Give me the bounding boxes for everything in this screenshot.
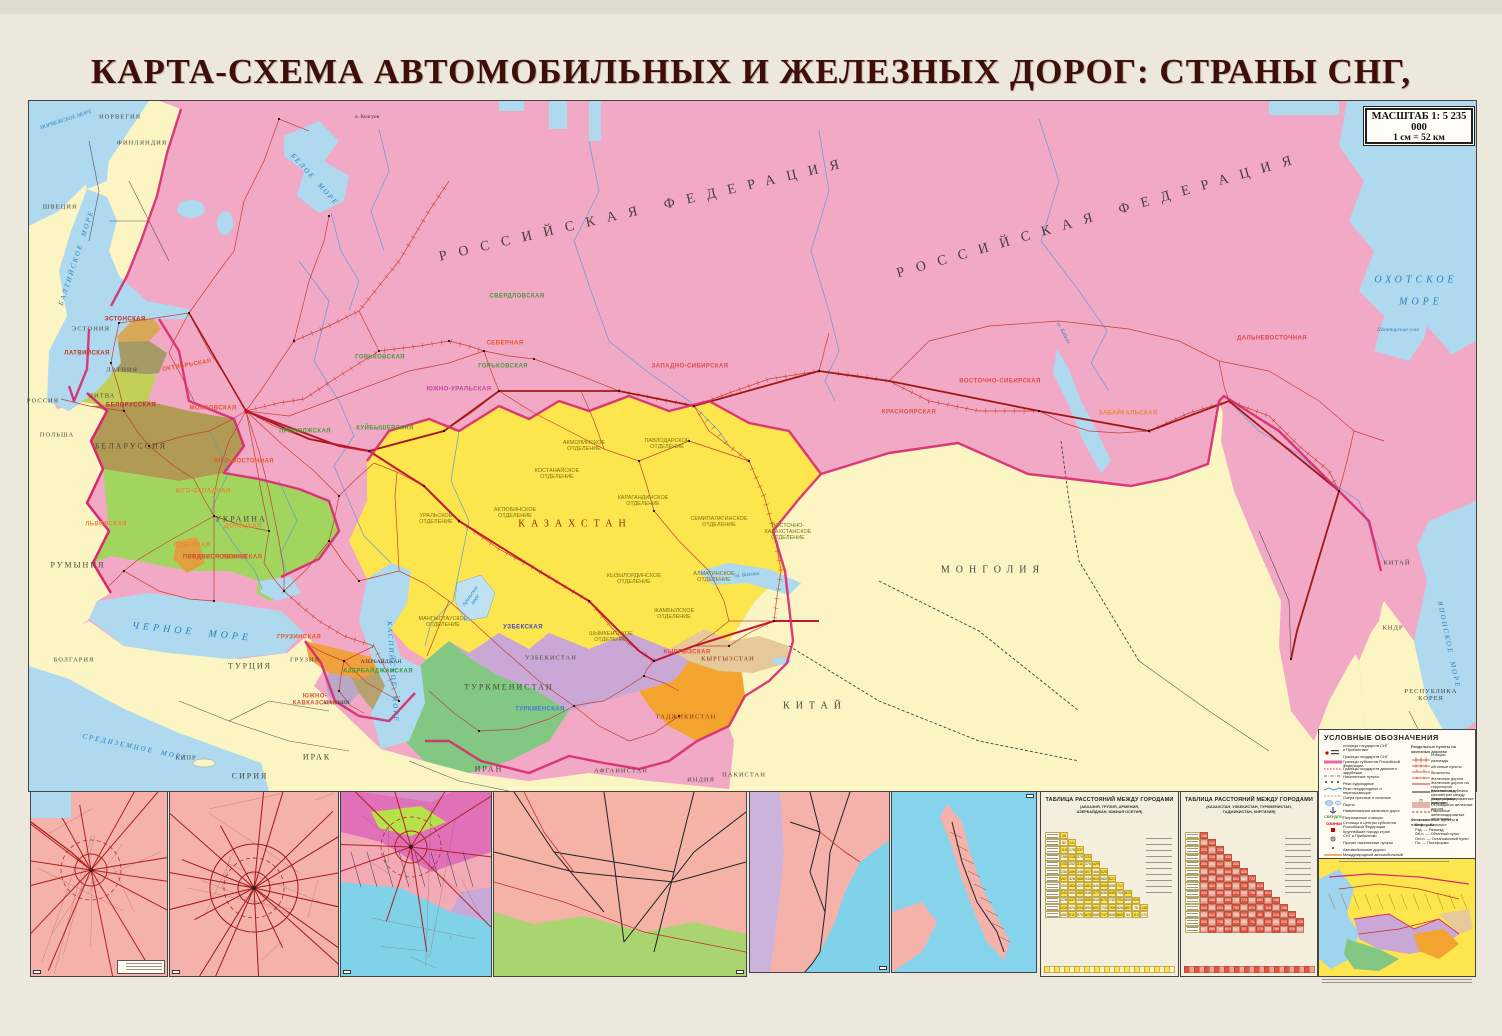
- table-row-label: [1045, 890, 1060, 897]
- table-cell: 715: [1232, 897, 1240, 904]
- table-row-label: [1185, 904, 1200, 911]
- table-cell: 449: [1216, 868, 1224, 875]
- table-cell: 133: [1256, 918, 1264, 925]
- table-cell: 722: [1248, 875, 1256, 882]
- table-cell: 82: [1060, 839, 1068, 846]
- table-row-label: [1045, 904, 1060, 911]
- table-cell: 575: [1208, 904, 1216, 911]
- table-row-label: [1185, 861, 1200, 868]
- table-cell: 311: [1076, 861, 1084, 868]
- table-cell: 614: [1092, 897, 1100, 904]
- table-cell: 597: [1216, 897, 1224, 904]
- inset-vladivostok[interactable]: [749, 791, 890, 973]
- table-row-label: [1045, 911, 1060, 918]
- table-cell: 347: [1280, 926, 1288, 933]
- table-cell: 634: [1216, 904, 1224, 911]
- table-cell: 331: [1200, 868, 1208, 875]
- table-cell: 767: [1224, 918, 1232, 925]
- table-cell: 304: [1060, 882, 1068, 889]
- table-cell: 429: [1092, 861, 1100, 868]
- table-row-label: [1185, 911, 1200, 918]
- table-cell: 257: [1200, 854, 1208, 861]
- table-cell: 406: [1288, 926, 1296, 933]
- table-cell: 96: [1256, 911, 1264, 918]
- table-cell: 562: [1100, 875, 1108, 882]
- table-row-label: [1045, 875, 1060, 882]
- table-cell: 437: [1068, 897, 1076, 904]
- table-cell: 464: [1208, 882, 1216, 889]
- map-canvas: ★: [29, 101, 1476, 791]
- table-cell: 806: [1108, 911, 1116, 918]
- table-cell: 516: [1200, 904, 1208, 911]
- legend-item: Крупнейшие города стран СНГ и Прибалтики: [1323, 830, 1407, 838]
- table-cell: 279: [1208, 846, 1216, 853]
- table-title: ТАБЛИЦА РАССТОЯНИЙ МЕЖДУ ГОРОДАМИ: [1181, 797, 1317, 803]
- inset-saint-petersburg[interactable]: [30, 791, 168, 977]
- table-row-label: [1185, 868, 1200, 875]
- table-row-label: [1045, 861, 1060, 868]
- table-cell: 333: [1084, 854, 1092, 861]
- table-cell: 170: [1256, 926, 1264, 933]
- table-cell: 791: [1116, 897, 1124, 904]
- table-row-label: [1045, 846, 1060, 853]
- table-subtitle: (КАЗАХСТАН, УЗБЕКИСТАН, ТУРКМЕНИСТАН, ТА…: [1181, 805, 1317, 814]
- table-cell: 434: [1224, 854, 1232, 861]
- table-cell: 45: [1060, 832, 1068, 839]
- table-cell: 525: [1100, 868, 1108, 875]
- inset-ekaterinburg-chelyabinsk[interactable]: [493, 791, 747, 977]
- table-cell: 481: [1084, 882, 1092, 889]
- table-row-label: [1045, 839, 1060, 846]
- table-cell: 508: [1224, 868, 1232, 875]
- table-cell: 288: [1272, 926, 1280, 933]
- table-row-label: [1045, 854, 1060, 861]
- table-cell: 538: [1208, 897, 1216, 904]
- table-cell: 855: [1256, 890, 1264, 897]
- legend: УСЛОВНЫЕ ОБОЗНАЧЕНИЯ столицы государств …: [1318, 729, 1476, 859]
- table-cell: 629: [1084, 911, 1092, 918]
- table-cell: 678: [1232, 890, 1240, 897]
- table-cell: 172: [1140, 911, 1148, 918]
- table-cell: 577: [1092, 890, 1100, 897]
- table-cell: 592: [1084, 904, 1092, 911]
- table-cell: 81: [1264, 897, 1272, 904]
- inset-label: [172, 970, 180, 974]
- table-cell: 553: [1200, 911, 1208, 918]
- table-cell: 686: [1208, 926, 1216, 933]
- table-row-label: [1185, 875, 1200, 882]
- table-cell: 338: [1216, 846, 1224, 853]
- table-row-label: [1045, 832, 1060, 839]
- inset-krasnodar-volgograd[interactable]: [340, 791, 492, 977]
- table-cell: 804: [1224, 926, 1232, 933]
- inset-label: [879, 966, 887, 970]
- table-cell: 341: [1060, 890, 1068, 897]
- table-cell: 560: [1216, 890, 1224, 897]
- table-cell: 663: [1240, 875, 1248, 882]
- table-row-label: [1185, 839, 1200, 846]
- table-cell: 452: [1060, 911, 1068, 918]
- table-cell: 710: [1100, 904, 1108, 911]
- table-cell: 641: [1232, 882, 1240, 889]
- table-cell: 326: [1068, 875, 1076, 882]
- table-cell: 237: [1076, 846, 1084, 853]
- table-cell: 717: [1116, 882, 1124, 889]
- table-cell: 796: [1248, 890, 1256, 897]
- legend-stop-item: Пл. — Платформа: [1415, 841, 1449, 845]
- table-cell: 511: [1068, 911, 1076, 918]
- table-cell: 251: [1272, 918, 1280, 925]
- table-row-label: [1185, 926, 1200, 933]
- table-cell: 415: [1060, 904, 1068, 911]
- table-cell: 540: [1092, 882, 1100, 889]
- table-cell: 730: [1224, 911, 1232, 918]
- table-cell: 363: [1068, 882, 1076, 889]
- table-cell: 545: [1224, 875, 1232, 882]
- table-cell: 671: [1216, 911, 1224, 918]
- table-cell: 273: [1280, 911, 1288, 918]
- table-row-label: [1045, 897, 1060, 904]
- table-cell: 119: [1060, 846, 1068, 853]
- table-cell: 428: [1296, 918, 1304, 925]
- table-cell: 649: [1208, 918, 1216, 925]
- table-cell: 274: [1076, 854, 1084, 861]
- table-cell: 909: [1132, 897, 1140, 904]
- table-cell: 833: [1248, 897, 1256, 904]
- table-cell: 826: [1232, 918, 1240, 925]
- table-cell: 183: [1200, 839, 1208, 846]
- table-cell: 156: [1060, 854, 1068, 861]
- table-cell: 496: [1076, 897, 1084, 904]
- scale-box: МАСШТАБ 1: 5 235 000 1 см = 52 км: [1363, 106, 1475, 146]
- table-cell: 192: [1264, 918, 1272, 925]
- table-cell: 555: [1084, 897, 1092, 904]
- table-subtitle: (АБХАЗИЯ, ГРУЗИЯ, АРМЕНИЯ, АЗЕРБАЙДЖАН, …: [1041, 805, 1178, 814]
- table-cell: 673: [1100, 897, 1108, 904]
- table-row-label: [1045, 868, 1060, 875]
- table-cell: 375: [1216, 854, 1224, 861]
- table-row-label: [1185, 832, 1200, 839]
- table-cell: 242: [1208, 839, 1216, 846]
- table-cell: 636: [1100, 890, 1108, 897]
- table-row-label: [1045, 882, 1060, 889]
- table-cell: 870: [1248, 904, 1256, 911]
- table-cell: 619: [1224, 890, 1232, 897]
- table-cell: 353: [1208, 861, 1216, 868]
- table-cell: 252: [1068, 861, 1076, 868]
- table-cell: 604: [1232, 875, 1240, 882]
- table-cell: 818: [1256, 882, 1264, 889]
- inset-sakhalin[interactable]: [891, 791, 1037, 973]
- scale-line1: МАСШТАБ 1: 5 235 000: [1367, 111, 1471, 133]
- table-cell: 267: [1060, 875, 1068, 882]
- table-cell: 135: [1140, 904, 1148, 911]
- imprint-caption: [1322, 979, 1472, 984]
- table-cell: 914: [1264, 890, 1272, 897]
- table-cell: 370: [1084, 861, 1092, 868]
- scale-line2: 1 см = 52 км: [1367, 133, 1471, 143]
- table-cell: 700: [1240, 882, 1248, 889]
- table-cell: 368: [1200, 875, 1208, 882]
- table-cell: 863: [1232, 926, 1240, 933]
- table-cell: 442: [1200, 890, 1208, 897]
- table-cell: 289: [1068, 868, 1076, 875]
- table-cell: 236: [1280, 904, 1288, 911]
- table-cell: 215: [1068, 854, 1076, 861]
- table-cell: 385: [1076, 875, 1084, 882]
- table-cell: 474: [1068, 904, 1076, 911]
- main-map[interactable]: ★: [28, 100, 1477, 792]
- table-cell: 54: [1124, 911, 1132, 918]
- table-row-label: [1185, 854, 1200, 861]
- table-cell: 651: [1092, 904, 1100, 911]
- legend-item: Столицы и центры субъектов Российской Фе…: [1323, 821, 1407, 829]
- table-cell: 695: [1108, 890, 1116, 897]
- table-cell: 848: [1240, 911, 1248, 918]
- inset-label: [736, 970, 744, 974]
- table-cell: 369: [1288, 918, 1296, 925]
- table-cell: 582: [1224, 882, 1232, 889]
- table-cell: 332: [1288, 911, 1296, 918]
- table-cell: 590: [1200, 918, 1208, 925]
- table-cell: 789: [1232, 911, 1240, 918]
- table-cell: 177: [1272, 904, 1280, 911]
- table-title: ТАБЛИЦА РАССТОЯНИЙ МЕЖДУ ГОРОДАМИ: [1041, 797, 1178, 803]
- table-cell: 141: [1068, 839, 1076, 846]
- table-cell: 378: [1060, 897, 1068, 904]
- table-cell: 708: [1216, 918, 1224, 925]
- table-cell: 444: [1084, 875, 1092, 882]
- table-cell: 178: [1068, 846, 1076, 853]
- table-cell: 229: [1264, 926, 1272, 933]
- table-cell: 745: [1216, 926, 1224, 933]
- table-cell: 533: [1076, 904, 1084, 911]
- table-cell: 113: [1132, 911, 1140, 918]
- table-cell: 732: [1108, 897, 1116, 904]
- table-cell: 754: [1116, 890, 1124, 897]
- inset-label: [343, 970, 351, 974]
- table-cell: 627: [1200, 926, 1208, 933]
- table-row-label: [1185, 846, 1200, 853]
- table-row-label: [1185, 918, 1200, 925]
- table-cell: 407: [1084, 868, 1092, 875]
- table-cell: 479: [1200, 897, 1208, 904]
- table-cell: 155: [1264, 911, 1272, 918]
- inset-label: [1026, 794, 1034, 798]
- table-cell: 769: [1108, 904, 1116, 911]
- table-cell: 310: [1280, 918, 1288, 925]
- legend-item: столицы государств СНГ и Прибалтики: [1323, 744, 1407, 752]
- table-cell: 530: [1232, 861, 1240, 868]
- table-cell: 759: [1248, 882, 1256, 889]
- table-cell: 459: [1076, 890, 1084, 897]
- top-edge: [0, 0, 1502, 14]
- table-cell: 658: [1108, 882, 1116, 889]
- table-cell: 865: [1116, 911, 1124, 918]
- distance-table-central-asia: ТАБЛИЦА РАССТОЯНИЙ МЕЖДУ ГОРОДАМИ(КАЗАХС…: [1180, 791, 1318, 977]
- inset-moscow[interactable]: [169, 791, 339, 977]
- table-cell: 813: [1124, 890, 1132, 897]
- table-cell: 471: [1224, 861, 1232, 868]
- table-cell: 774: [1240, 897, 1248, 904]
- table-cell: 412: [1216, 861, 1224, 868]
- table-cell: 811: [1240, 904, 1248, 911]
- table-cell: 193: [1060, 861, 1068, 868]
- table-cell: 465: [1296, 926, 1304, 933]
- table-cell: 390: [1208, 868, 1216, 875]
- table-cell: 693: [1224, 904, 1232, 911]
- table-cell: 747: [1100, 911, 1108, 918]
- table-cell: 752: [1232, 904, 1240, 911]
- table-cell: 570: [1076, 911, 1084, 918]
- table-cell: 503: [1092, 875, 1100, 882]
- table-cell: 348: [1076, 868, 1084, 875]
- table-cell: 626: [1240, 868, 1248, 875]
- table-cell: 688: [1092, 911, 1100, 918]
- svg-text:★: ★: [243, 407, 250, 416]
- table-cell: 567: [1232, 868, 1240, 875]
- table-cell: 230: [1060, 868, 1068, 875]
- poster: КАРТА-СХЕМА АВТОМОБИЛЬНЫХ И ЖЕЛЕЗНЫХ ДОР…: [0, 0, 1502, 1036]
- table-cell: 140: [1272, 897, 1280, 904]
- table-cell: 111: [1248, 926, 1256, 933]
- legend-header: УСЛОВНЫЕ ОБОЗНАЧЕНИЯ: [1324, 733, 1439, 742]
- table-cell: 523: [1216, 882, 1224, 889]
- table-cell: 885: [1240, 918, 1248, 925]
- table-row-label: [1185, 890, 1200, 897]
- table-cell: 907: [1248, 911, 1256, 918]
- inset-label: [33, 970, 41, 974]
- table-cell: 52: [1240, 926, 1248, 933]
- table-cell: 737: [1240, 890, 1248, 897]
- table-cell: 612: [1208, 911, 1216, 918]
- table-cell: 656: [1224, 897, 1232, 904]
- distance-table-caucasus: ТАБЛИЦА РАССТОЯНИЙ МЕЖДУ ГОРОДАМИ(АБХАЗИ…: [1040, 791, 1179, 977]
- table-cell: 74: [1248, 918, 1256, 925]
- table-cell: 405: [1200, 882, 1208, 889]
- table-cell: 422: [1076, 882, 1084, 889]
- table-cell: 486: [1216, 875, 1224, 882]
- table-row-label: [1185, 897, 1200, 904]
- table-cell: 59: [1256, 904, 1264, 911]
- table-cell: 214: [1272, 911, 1280, 918]
- table-cell: 294: [1200, 861, 1208, 868]
- table-cell: 220: [1200, 846, 1208, 853]
- table-cell: 118: [1264, 904, 1272, 911]
- table-cell: 621: [1108, 875, 1116, 882]
- legend-item: Международный автомобильный коридор «Зап…: [1323, 853, 1407, 859]
- table-row-label: [1185, 882, 1200, 889]
- table-cell: 850: [1124, 897, 1132, 904]
- table-cell: 427: [1208, 875, 1216, 882]
- table-cell: 518: [1084, 890, 1092, 897]
- table-cell: 76: [1132, 904, 1140, 911]
- table-cell: 599: [1100, 882, 1108, 889]
- table-cell: 466: [1092, 868, 1100, 875]
- table-cell: 316: [1208, 854, 1216, 861]
- table-cell: 146: [1200, 832, 1208, 839]
- table-cell: 501: [1208, 890, 1216, 897]
- table-cell: 892: [1256, 897, 1264, 904]
- table-cell: 887: [1124, 904, 1132, 911]
- table-cell: 828: [1116, 904, 1124, 911]
- inset-central-asia-overview[interactable]: [1318, 858, 1476, 977]
- table-cell: 400: [1068, 890, 1076, 897]
